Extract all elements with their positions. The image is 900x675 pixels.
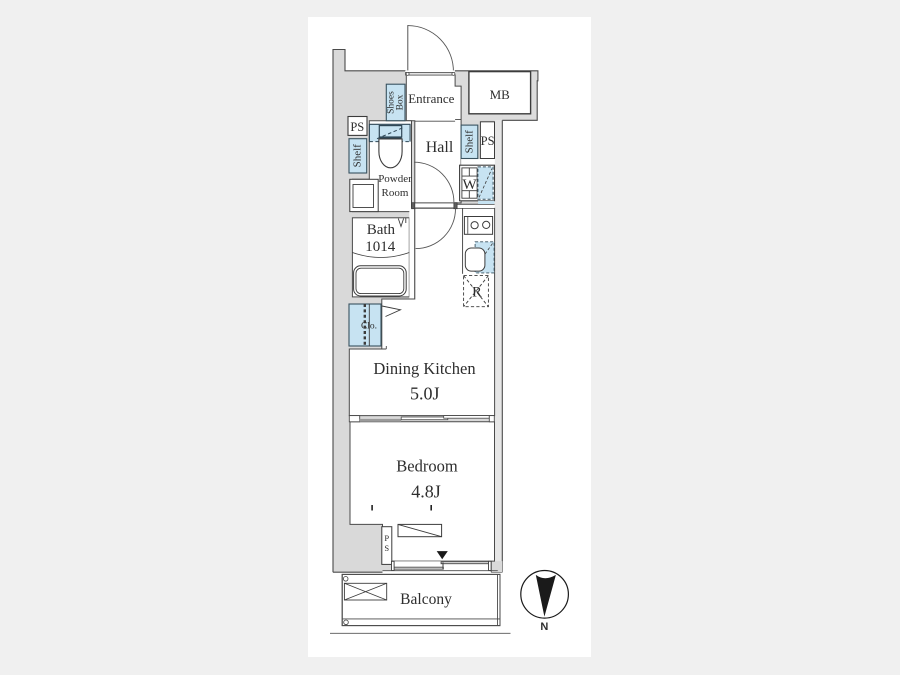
svg-text:1014: 1014 [365,239,396,255]
svg-text:Room: Room [382,187,409,199]
svg-text:4.8J: 4.8J [411,482,441,502]
svg-text:MB: MB [490,87,511,102]
svg-text:Hall: Hall [426,139,454,156]
svg-text:Entrance: Entrance [408,91,454,106]
svg-text:Shelf: Shelf [464,130,476,154]
svg-text:Bedroom: Bedroom [396,457,458,476]
svg-text:Dining Kitchen: Dining Kitchen [373,359,475,378]
svg-text:Powder: Powder [378,173,412,185]
svg-text:Balcony: Balcony [400,591,452,608]
svg-text:R: R [472,285,482,301]
svg-text:Shelf: Shelf [352,144,364,168]
svg-text:P: P [384,533,389,543]
svg-text:Bath: Bath [367,222,396,238]
svg-text:N: N [540,621,548,633]
svg-text:PS: PS [350,120,364,134]
svg-text:PS: PS [481,134,495,148]
svg-text:5.0J: 5.0J [410,384,440,404]
svg-text:W: W [463,177,478,193]
svg-text:Clo.: Clo. [361,322,377,332]
svg-text:S: S [384,543,389,553]
